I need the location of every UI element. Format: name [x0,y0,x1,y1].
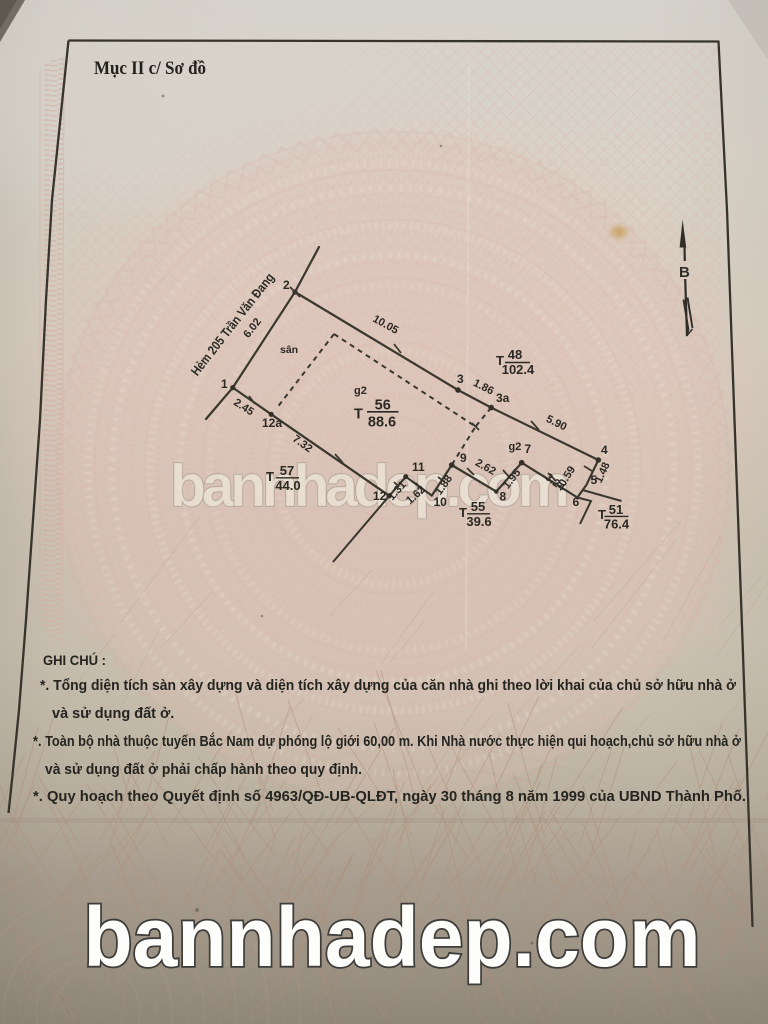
svg-text:88.6: 88.6 [368,415,396,431]
svg-text:GHI CHÚ :: GHI CHÚ : [43,651,106,668]
svg-text:3: 3 [457,372,464,386]
svg-text:51: 51 [609,502,623,517]
svg-text:39.6: 39.6 [466,514,491,529]
svg-text:12: 12 [373,489,387,503]
svg-text:sân: sân [280,344,298,356]
svg-text:6: 6 [573,495,580,509]
svg-text:T: T [354,407,363,423]
svg-text:g2: g2 [509,441,522,453]
svg-text:2: 2 [283,278,290,292]
svg-text:57: 57 [280,463,294,478]
svg-text:11: 11 [412,460,425,474]
svg-text:55: 55 [471,499,485,514]
svg-text:12a: 12a [262,416,282,430]
svg-text:*. Quy hoạch theo Quyết định s: *. Quy hoạch theo Quyết định số 4963/QĐ-… [33,789,746,805]
svg-text:44.0: 44.0 [275,478,300,493]
svg-text:48: 48 [508,347,522,362]
svg-text:9: 9 [460,451,467,465]
svg-text:*. Tổng diện tích sàn xây dựng: *. Tổng diện tích sàn xây dựng và diện t… [40,678,737,694]
svg-text:T: T [266,469,274,484]
svg-text:1: 1 [221,377,228,391]
svg-text:10: 10 [434,495,448,509]
svg-text:bannhadep.com: bannhadep.com [84,890,701,984]
svg-text:5: 5 [591,473,598,487]
svg-text:*. Toàn bộ nhà thuộc tuyến Bắc: *. Toàn bộ nhà thuộc tuyến Bắc Nam dự ph… [33,732,742,750]
svg-text:8: 8 [500,490,507,504]
svg-text:B: B [679,264,690,281]
svg-text:và sử dụng đất ở.: và sử dụng đất ở. [52,706,174,722]
svg-text:Mục II c/ Sơ đồ: Mục II c/ Sơ đồ [94,59,206,79]
svg-text:3a: 3a [496,391,510,405]
svg-text:và sử dụng đất ở phải chấp hàn: và sử dụng đất ở phải chấp hành theo quy… [45,762,362,778]
svg-text:4: 4 [601,443,608,457]
svg-text:76.4: 76.4 [604,517,630,532]
svg-text:g2: g2 [354,385,367,397]
svg-text:102.4: 102.4 [502,362,535,377]
svg-text:7: 7 [525,442,532,456]
